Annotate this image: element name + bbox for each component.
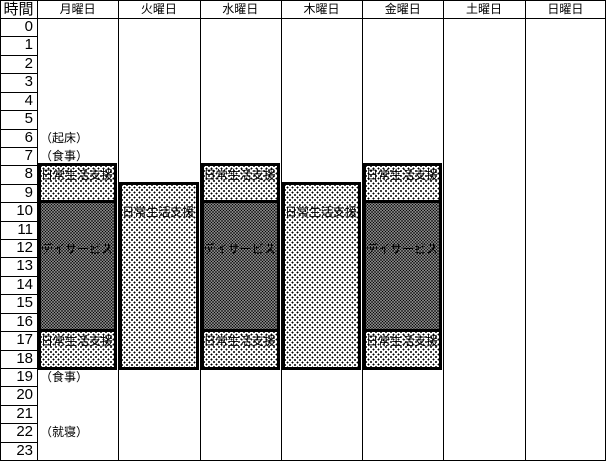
grid-line	[443, 0, 444, 461]
grid-line	[0, 18, 606, 19]
schedule-block-day2-17to19: 日常生活支援	[201, 329, 280, 370]
day-header-0: 月曜日	[37, 1, 118, 18]
time-column-header: 時間	[0, 1, 37, 18]
day-header-4: 金曜日	[362, 1, 443, 18]
block-label: デイサービス	[204, 243, 276, 256]
schedule-block-day2-8to10: 日常生活支援	[201, 163, 280, 204]
day-header-5: 土曜日	[443, 1, 524, 18]
time-label-8: 8	[0, 165, 33, 183]
block-label: 日常生活支援	[285, 206, 357, 219]
time-label-14: 14	[0, 276, 33, 294]
time-label-18: 18	[0, 350, 33, 368]
time-label-6: 6	[0, 129, 33, 147]
block-label: デイサービス	[366, 243, 438, 256]
block-label: 日常生活支援	[122, 206, 194, 219]
annotation-hour-22: （就寝）	[40, 425, 88, 440]
time-label-13: 13	[0, 257, 33, 275]
schedule-block-day0-10to17: デイサービス	[38, 200, 117, 333]
time-label-21: 21	[0, 405, 33, 423]
time-label-20: 20	[0, 386, 33, 404]
time-label-0: 0	[0, 18, 33, 36]
day-header-6: 日曜日	[525, 1, 606, 18]
time-label-17: 17	[0, 331, 33, 349]
day-header-2: 水曜日	[200, 1, 281, 18]
time-label-10: 10	[0, 202, 33, 220]
block-label: 日常生活支援	[204, 169, 276, 182]
schedule-block-day1-9to19: 日常生活支援	[119, 182, 198, 370]
time-label-23: 23	[0, 442, 33, 460]
schedule-block-day4-10to17: デイサービス	[363, 200, 442, 333]
schedule-block-day2-10to17: デイサービス	[201, 200, 280, 333]
time-label-15: 15	[0, 294, 33, 312]
block-label: 日常生活支援	[366, 335, 438, 348]
time-label-2: 2	[0, 55, 33, 73]
time-label-1: 1	[0, 36, 33, 54]
day-header-3: 木曜日	[281, 1, 362, 18]
annotation-hour-7: （食事）	[40, 149, 88, 164]
block-label: 日常生活支援	[204, 335, 276, 348]
time-label-7: 7	[0, 147, 33, 165]
time-label-11: 11	[0, 221, 33, 239]
time-label-5: 5	[0, 110, 33, 128]
schedule-block-day0-8to10: 日常生活支援	[38, 163, 117, 204]
time-label-16: 16	[0, 313, 33, 331]
block-label: デイサービス	[41, 243, 113, 256]
schedule-block-day0-17to19: 日常生活支援	[38, 329, 117, 370]
time-label-3: 3	[0, 73, 33, 91]
schedule-block-day4-8to10: 日常生活支援	[363, 163, 442, 204]
schedule-block-day4-17to19: 日常生活支援	[363, 329, 442, 370]
time-label-19: 19	[0, 368, 33, 386]
grid-line	[605, 0, 606, 461]
time-label-22: 22	[0, 423, 33, 441]
block-label: 日常生活支援	[366, 169, 438, 182]
schedule-block-day3-9to19: 日常生活支援	[282, 182, 361, 370]
annotation-hour-19: （食事）	[40, 370, 88, 385]
time-label-4: 4	[0, 92, 33, 110]
weekly-schedule-table: 時間 月曜日火曜日水曜日木曜日金曜日土曜日日曜日 012345678910111…	[0, 0, 607, 461]
annotation-hour-6: （起床）	[40, 131, 88, 146]
block-label: 日常生活支援	[41, 169, 113, 182]
grid-line	[525, 0, 526, 461]
block-label: 日常生活支援	[41, 335, 113, 348]
time-label-9: 9	[0, 184, 33, 202]
time-label-12: 12	[0, 239, 33, 257]
day-header-1: 火曜日	[118, 1, 199, 18]
